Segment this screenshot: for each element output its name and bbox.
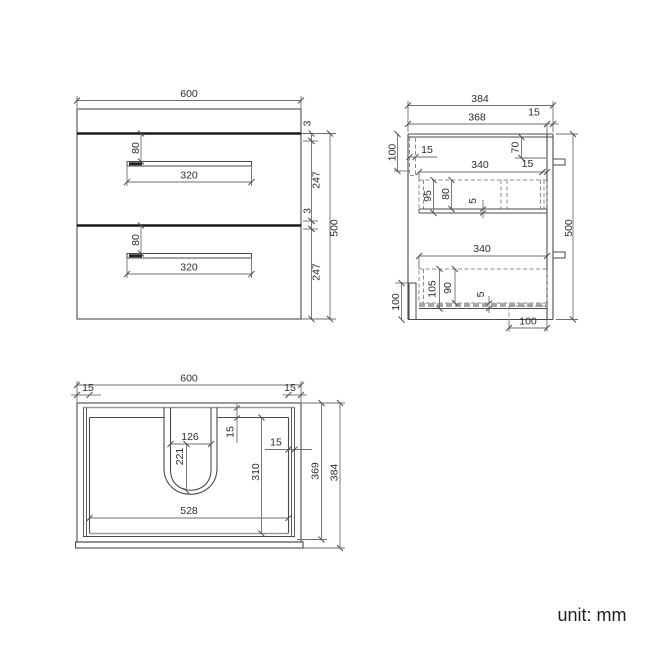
plan-left-wall-label: 15 — [82, 382, 94, 394]
side-view: 384 368 15 15 100 70 340 15 — [386, 93, 578, 332]
drawer2-front-height-label: 105 — [426, 280, 438, 298]
drawer1-front-height-label: 95 — [422, 190, 434, 202]
dim-inner-depth: 310 — [250, 418, 262, 534]
dim-drawer2-depth: 340 — [419, 243, 547, 269]
wall-bracket-top — [553, 159, 565, 165]
hanging-rail — [410, 138, 416, 176]
drawer2-inner-height-label: 90 — [442, 282, 454, 294]
drawer1-depth-label: 340 — [471, 159, 489, 171]
dim-plan-right-wall: 15 — [283, 382, 307, 395]
dim-plan-width: 600 — [77, 373, 301, 403]
plan-outline — [77, 403, 301, 542]
front-drawer1-height-label: 247 — [310, 171, 322, 189]
front-outline — [77, 109, 301, 319]
plan-front-slab — [76, 542, 304, 548]
unit-label: unit: mm — [557, 605, 626, 625]
handle1-length-label: 320 — [180, 170, 198, 182]
dim-plan-left-wall: 15 — [71, 382, 101, 395]
dim-front-heights: 3 247 3 247 500 — [301, 120, 340, 319]
dim-handle1: 80 320 — [127, 134, 252, 187]
drawer2-depth-label: 340 — [473, 243, 491, 255]
side-back-panel-label: 15 — [528, 107, 540, 119]
inner-depth-label: 310 — [250, 463, 262, 481]
side-depth-label: 384 — [471, 93, 489, 105]
hang-rail-thickness-label: 15 — [421, 144, 433, 156]
handle1-offset-label: 80 — [130, 142, 142, 154]
wall-bracket-bottom — [553, 252, 565, 258]
cutout-top-inset-label: 15 — [224, 426, 236, 438]
drawer1-inner-height-label: 80 — [440, 188, 452, 200]
side-inner-depth-label: 368 — [468, 112, 486, 124]
front-drawer2-height-label: 247 — [310, 263, 322, 281]
handle2-offset-label: 80 — [130, 234, 142, 246]
plan-total-depth-label: 384 — [328, 464, 340, 482]
hang-rail-height-label: 100 — [386, 144, 398, 162]
back-rail-drop-label: 70 — [509, 142, 521, 154]
dim-cutout-inset: 15 — [224, 403, 240, 443]
cutout-depth-label: 221 — [174, 448, 186, 466]
front-total-height-label: 500 — [328, 219, 340, 237]
front-bottom-strip — [409, 283, 416, 320]
front-gap-top-label: 3 — [301, 120, 313, 126]
drawer2-bottom-label: 5 — [475, 291, 487, 297]
notch-width-label: 100 — [519, 316, 537, 328]
handle2-length-label: 320 — [180, 262, 198, 274]
dim-plan-depths: 369 384 — [297, 403, 345, 548]
dim-front-width: 600 — [77, 88, 301, 108]
plumbing-cutout-outer — [164, 408, 217, 495]
dim-hang-rail: 15 100 — [386, 134, 437, 171]
dim-handle2: 80 320 — [127, 226, 252, 279]
dim-back-rail: 70 — [509, 137, 546, 158]
side-height-label: 500 — [563, 219, 575, 237]
technical-drawing-vanity-cabinet: 600 80 320 80 320 — [0, 0, 650, 650]
dim-notch: 100 — [509, 316, 547, 332]
dim-cutout: 126 221 — [171, 431, 212, 491]
front-width-label: 600 — [180, 88, 198, 100]
dim-side-depth: 384 368 15 — [408, 93, 559, 134]
drawer1-back-gap-label: 15 — [522, 158, 534, 170]
drawer1-handle — [127, 162, 252, 167]
dim-drawer1-heights: 95 80 5 — [422, 180, 486, 218]
dim-inner-width: 528 — [90, 505, 289, 518]
drawing-svg: 600 80 320 80 320 — [0, 0, 650, 650]
dim-drawer1-depth: 340 15 — [419, 158, 547, 180]
front-bottom-height-label: 100 — [390, 293, 402, 311]
inner-width-label: 528 — [180, 505, 198, 517]
cutout-width-label: 126 — [181, 431, 199, 443]
dim-front-bottom: 100 — [390, 283, 409, 320]
plan-right-wall-label: 15 — [284, 382, 296, 394]
drawer2-handle — [127, 254, 252, 259]
plan-view: 600 15 15 15 126 221 — [71, 373, 345, 549]
drawer1-bottom-label: 5 — [467, 198, 479, 204]
plan-width-label: 600 — [180, 373, 198, 385]
right-inner-gap-label: 15 — [270, 437, 282, 449]
front-gap-middle-label: 3 — [301, 208, 313, 214]
front-view: 600 80 320 80 320 — [77, 88, 340, 319]
depth-to-rail-label: 369 — [309, 462, 321, 480]
